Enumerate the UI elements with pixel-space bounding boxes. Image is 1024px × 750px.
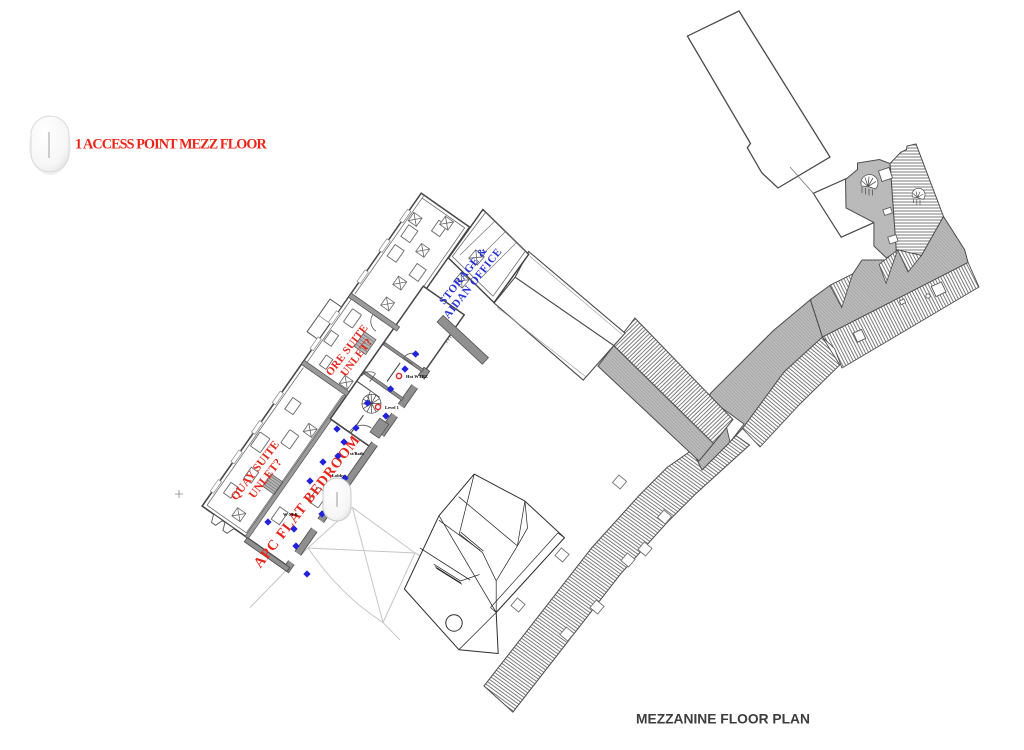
svg-text:MEZZANINE FLOOR PLAN: MEZZANINE FLOOR PLAN bbox=[636, 712, 810, 727]
svg-text:Level 1: Level 1 bbox=[385, 405, 400, 410]
svg-text:Lobby: Lobby bbox=[332, 473, 345, 478]
svg-text:W-M-B: W-M-B bbox=[283, 512, 298, 517]
svg-text:st/Bath: st/Bath bbox=[350, 451, 364, 456]
svg-text:Hot WTRZ: Hot WTRZ bbox=[406, 374, 428, 379]
svg-text:1 ACCESS POINT MEZZ FLOOR: 1 ACCESS POINT MEZZ FLOOR bbox=[75, 137, 268, 153]
